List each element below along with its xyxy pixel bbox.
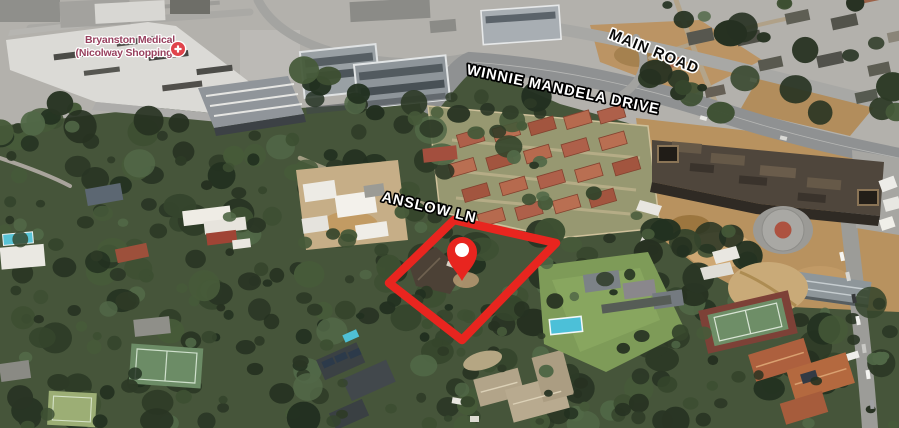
tree [457,309,473,321]
tree [249,131,261,141]
tree [201,180,212,190]
tree [617,343,630,354]
tree [338,234,356,248]
tree [536,191,549,201]
tree [345,275,354,283]
tree [502,105,519,119]
tree [76,321,87,332]
tree [379,301,395,314]
tree [307,304,323,316]
tree [818,315,848,344]
tree [507,150,521,164]
tree [447,105,470,123]
tree [247,363,263,375]
tree [189,270,221,301]
tree [335,301,356,320]
tree [516,121,527,131]
tree [41,408,55,421]
tree [289,56,319,84]
tree [535,418,544,425]
tennis-court [47,391,97,427]
tree [224,310,234,320]
tree [356,313,364,319]
tree [546,293,563,309]
tree [286,133,300,146]
tree [298,237,312,249]
tree [134,106,164,136]
tree [730,65,759,91]
tree [708,355,719,365]
tree [11,286,22,296]
poi-label-line1: Bryanston Medical [85,34,175,46]
tree [29,327,56,348]
tree [34,315,44,323]
tree [296,292,312,304]
tree [529,162,539,169]
tree [792,37,818,63]
tree [696,413,711,427]
tree [579,402,589,412]
tree [231,187,246,198]
tree [420,332,430,342]
tree [522,194,536,206]
tree [445,92,457,102]
tree [324,149,338,161]
tree [6,151,16,161]
tree [47,374,69,391]
tree [648,245,658,254]
tree [141,198,157,211]
tree [93,414,108,428]
tree [539,365,554,378]
tree [176,390,192,404]
poi-label-bryanston-medical[interactable]: Bryanston Medical (Nicolway Shopping... [76,34,187,59]
tree [677,245,690,258]
tree [631,411,645,425]
tree [416,393,426,403]
tree [697,84,707,92]
tree [21,135,39,151]
tree [77,216,94,228]
tree [36,200,45,208]
tree [474,89,489,104]
tree [110,268,126,281]
tree [810,377,822,386]
tree [48,238,64,251]
tree [326,228,340,239]
tree [93,332,102,340]
tree [868,37,884,50]
tree [671,341,680,349]
tree [780,75,812,103]
tree [514,301,530,317]
tree [11,306,35,329]
tree [596,272,614,286]
tree [650,219,681,241]
tree [87,340,102,355]
tree [91,250,103,261]
courtyard [858,190,878,205]
medical-cross-pin-icon[interactable] [170,41,187,58]
tree [586,186,602,200]
tree [360,270,372,280]
tree [225,248,234,256]
tree [419,120,443,138]
tree [269,268,284,283]
tree [53,257,77,277]
tree [269,383,294,404]
tree [707,381,718,391]
aerial-photo: MAIN ROAD WINNIE MANDELA DRIVE ANSLOW LN… [0,0,899,428]
tree [497,365,506,373]
tree [258,186,267,194]
tree [12,231,28,247]
tree [263,279,273,286]
tree [115,292,139,311]
tree [629,394,649,413]
tree [185,250,206,269]
tree [455,383,470,397]
tree [202,331,217,343]
tree [326,415,340,427]
tree [757,32,771,42]
tree [366,105,385,120]
tree [33,290,48,304]
tree [696,327,711,340]
tree [385,404,397,414]
tree [246,218,266,233]
tree [347,84,370,104]
tree [294,261,325,288]
tree [47,91,74,115]
tree [337,379,347,388]
tree [176,283,187,293]
tree [217,304,226,311]
tree [847,335,860,345]
tree [121,379,138,393]
tree [574,378,588,389]
tree [624,269,635,280]
tree [118,219,129,227]
tree [316,317,347,344]
tree [65,156,91,177]
tree [714,398,727,408]
tree [21,111,46,136]
tree [254,336,264,346]
tree [657,376,677,393]
tree [264,314,280,330]
tree [320,339,334,350]
tree [603,234,616,244]
tree [7,385,33,410]
tree [11,168,27,184]
tree [632,368,650,384]
tree [316,67,341,86]
tree [293,373,323,401]
tree [351,124,366,139]
map-canvas[interactable]: MAIN ROAD WINNIE MANDELA DRIVE ANSLOW LN… [0,0,899,428]
tree [296,329,312,344]
tree [873,298,886,310]
tree [631,211,643,220]
poi-label-line2: (Nicolway Shopping... [76,47,181,59]
tree [247,153,259,165]
tree [497,327,507,337]
tree [150,224,168,239]
tree [65,121,80,133]
tree [437,346,449,356]
tree [672,324,689,340]
tree [408,111,423,125]
tree [698,11,711,22]
tree [675,80,692,95]
tree [882,325,898,338]
tree [444,415,452,421]
tree [157,131,168,141]
tree [223,212,236,222]
tree [754,370,764,380]
tree [236,340,256,354]
tree [721,225,735,238]
tree [642,229,655,240]
tree [415,222,428,233]
tree [293,355,309,367]
tree [683,397,699,409]
tree [432,338,443,348]
tree [842,49,859,61]
tree [573,389,582,398]
tree [374,244,388,257]
tree [124,149,155,177]
tree [480,103,495,116]
tree [169,113,190,132]
tree [561,237,582,253]
tree [217,403,229,413]
tree [107,156,115,163]
tree [107,336,121,350]
tree [254,262,268,276]
tree [223,146,244,166]
tree [570,292,580,301]
tree [615,403,631,416]
tree [726,13,757,43]
tree [223,163,235,173]
tree [100,385,115,399]
tree [410,355,437,377]
tree [93,206,113,221]
tree [674,11,694,28]
tree [634,330,650,342]
tree [867,353,881,365]
tree [731,371,745,383]
tree [524,98,537,108]
tree [185,338,196,348]
tree [461,396,476,407]
tree [249,276,260,286]
tree [128,367,142,379]
tree [538,333,546,339]
tree [99,301,117,317]
tree [707,102,735,124]
tree [219,396,228,404]
tree [14,218,27,231]
tree [445,304,454,311]
tennis-court [129,344,204,389]
tree [662,1,672,9]
tree [544,390,553,397]
tree [457,348,466,357]
tree [609,289,618,295]
tree [5,216,14,225]
tree [802,418,814,428]
swimming-pool [549,316,582,334]
tree [68,305,81,316]
tree [489,125,506,138]
tree [175,156,187,166]
tree [564,407,578,419]
tree [467,126,484,139]
tree [4,196,16,207]
courtyard [658,146,678,162]
tree [808,100,833,124]
